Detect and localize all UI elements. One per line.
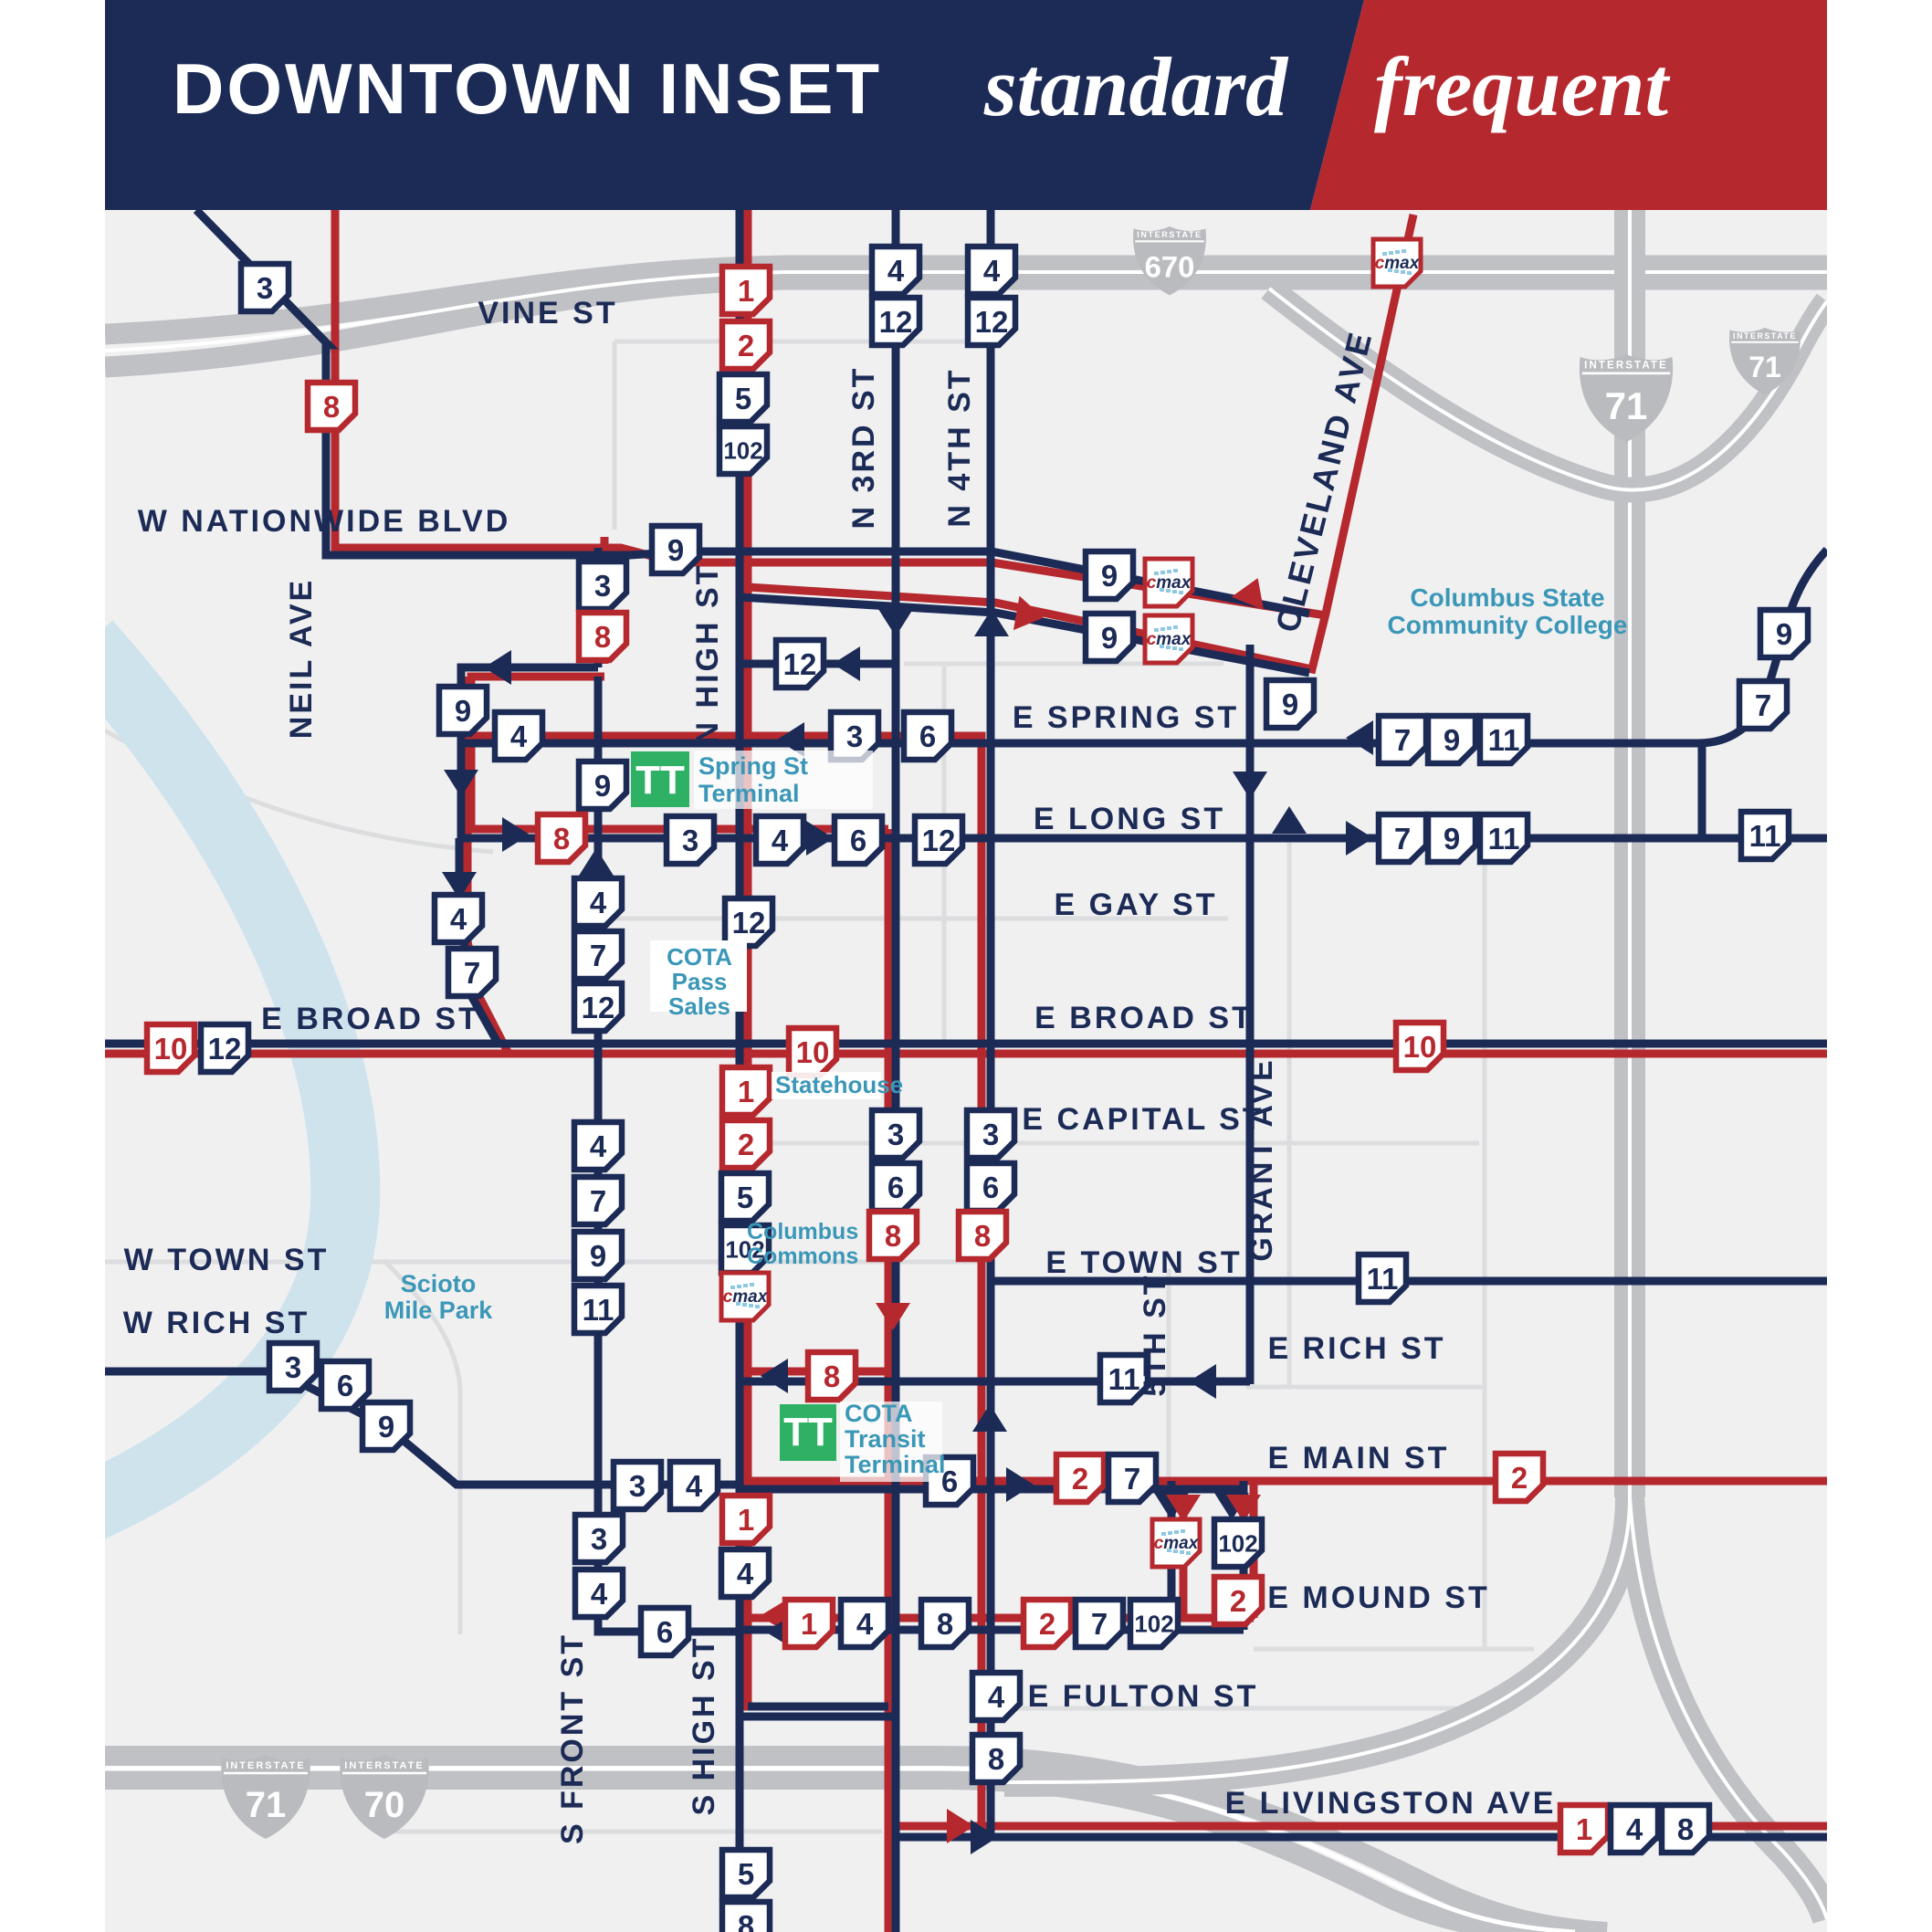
svg-text:4: 4: [1626, 1812, 1643, 1846]
svg-text:9: 9: [590, 1239, 606, 1273]
svg-text:9: 9: [378, 1410, 394, 1444]
svg-text:9: 9: [1101, 621, 1118, 655]
svg-text:Sales: Sales: [668, 992, 730, 1020]
svg-text:102: 102: [1134, 1610, 1173, 1637]
svg-text:2: 2: [1072, 1462, 1088, 1496]
svg-text:frequent: frequent: [1374, 40, 1670, 133]
svg-text:COTA: COTA: [845, 1400, 913, 1427]
svg-text:8: 8: [1677, 1812, 1694, 1846]
svg-text:Mile Park: Mile Park: [384, 1297, 494, 1324]
svg-text:Terminal: Terminal: [698, 780, 800, 807]
svg-text:11: 11: [1488, 822, 1520, 856]
svg-text:9: 9: [1444, 723, 1460, 757]
svg-text:E LIVINGSTON AVE: E LIVINGSTON AVE: [1225, 1786, 1557, 1821]
svg-text:6: 6: [919, 719, 936, 753]
svg-text:8: 8: [738, 1909, 754, 1932]
svg-text:Commons: Commons: [747, 1244, 858, 1269]
svg-text:INTERSTATE: INTERSTATE: [1137, 230, 1202, 239]
svg-text:3: 3: [982, 1118, 999, 1151]
svg-text:11: 11: [1749, 819, 1781, 853]
svg-text:E MOUND ST: E MOUND ST: [1267, 1580, 1489, 1615]
svg-text:standard: standard: [983, 40, 1289, 133]
svg-text:1: 1: [738, 1503, 754, 1537]
svg-text:6: 6: [656, 1615, 673, 1649]
svg-text:COTA: COTA: [667, 943, 732, 971]
svg-text:7: 7: [1124, 1462, 1140, 1496]
svg-text:5: 5: [738, 1857, 754, 1891]
svg-text:VINE ST: VINE ST: [478, 296, 617, 331]
svg-text:4: 4: [983, 254, 1001, 288]
svg-text:102: 102: [1218, 1529, 1257, 1557]
svg-text:4: 4: [772, 824, 789, 857]
svg-text:W TOWN ST: W TOWN ST: [124, 1243, 330, 1277]
svg-text:7: 7: [464, 956, 480, 990]
svg-text:12: 12: [208, 1032, 242, 1066]
svg-text:N 4TH ST: N 4TH ST: [942, 367, 977, 527]
svg-text:12: 12: [783, 647, 817, 681]
svg-text:10: 10: [1403, 1030, 1437, 1064]
svg-text:2: 2: [1039, 1607, 1055, 1641]
svg-text:4: 4: [988, 1680, 1005, 1714]
svg-text:4: 4: [887, 254, 905, 288]
svg-text:Community College: Community College: [1388, 611, 1628, 639]
svg-text:Columbus State: Columbus State: [1410, 583, 1604, 612]
svg-text:Pass: Pass: [672, 968, 728, 995]
svg-text:cmax: cmax: [1375, 254, 1421, 273]
svg-text:8: 8: [824, 1360, 840, 1393]
svg-text:4: 4: [450, 902, 467, 936]
svg-text:W NATIONWIDE BLVD: W NATIONWIDE BLVD: [138, 504, 511, 539]
svg-text:1: 1: [801, 1607, 817, 1641]
svg-text:12: 12: [582, 991, 615, 1024]
svg-text:9: 9: [1776, 617, 1792, 651]
svg-text:8: 8: [937, 1607, 953, 1641]
svg-text:5TH ST: 5TH ST: [1138, 1273, 1172, 1396]
svg-text:11: 11: [1108, 1362, 1140, 1396]
svg-text:11: 11: [583, 1293, 614, 1327]
svg-text:12: 12: [975, 305, 1009, 339]
svg-text:4: 4: [686, 1469, 703, 1503]
svg-text:E LONG ST: E LONG ST: [1034, 802, 1225, 836]
svg-text:11: 11: [1367, 1262, 1399, 1296]
svg-text:10: 10: [154, 1032, 188, 1066]
svg-text:6: 6: [887, 1171, 904, 1204]
svg-text:7: 7: [590, 939, 606, 972]
svg-text:INTERSTATE: INTERSTATE: [226, 1760, 305, 1771]
svg-text:71: 71: [1605, 384, 1648, 427]
svg-text:S HIGH ST: S HIGH ST: [687, 1635, 721, 1815]
svg-text:cmax: cmax: [1147, 573, 1192, 593]
svg-text:DOWNTOWN INSET: DOWNTOWN INSET: [173, 48, 882, 129]
svg-text:8: 8: [323, 390, 340, 424]
svg-text:12: 12: [922, 824, 956, 857]
svg-text:E MAIN ST: E MAIN ST: [1268, 1441, 1450, 1475]
svg-text:Terminal: Terminal: [845, 1451, 946, 1478]
svg-text:Statehouse: Statehouse: [775, 1071, 903, 1098]
svg-text:1: 1: [1576, 1812, 1592, 1846]
svg-text:GRANT AVE: GRANT AVE: [1244, 1057, 1279, 1261]
svg-text:5: 5: [735, 382, 751, 415]
svg-text:2: 2: [738, 329, 754, 362]
svg-text:Spring St: Spring St: [698, 752, 808, 780]
svg-text:3: 3: [846, 719, 863, 753]
svg-text:3: 3: [285, 1350, 301, 1384]
svg-text:E CAPITAL ST: E CAPITAL ST: [1022, 1102, 1264, 1137]
svg-text:cmax: cmax: [723, 1287, 769, 1307]
svg-text:4: 4: [590, 886, 607, 919]
svg-text:S FRONT ST: S FRONT ST: [555, 1633, 590, 1844]
svg-text:2: 2: [738, 1128, 754, 1161]
svg-text:8: 8: [885, 1219, 901, 1253]
svg-text:3: 3: [257, 271, 273, 305]
svg-text:3: 3: [591, 1522, 607, 1556]
svg-text:INTERSTATE: INTERSTATE: [1584, 361, 1668, 372]
svg-text:8: 8: [988, 1742, 1004, 1776]
svg-text:7: 7: [1394, 723, 1411, 757]
svg-text:4: 4: [590, 1129, 607, 1163]
svg-text:NEIL AVE: NEIL AVE: [284, 578, 319, 739]
svg-text:1: 1: [738, 1075, 754, 1108]
svg-text:670: 670: [1145, 250, 1195, 284]
svg-text:1: 1: [738, 274, 754, 308]
svg-text:9: 9: [1444, 822, 1460, 856]
svg-text:TT: TT: [783, 1410, 833, 1454]
svg-text:E FULTON ST: E FULTON ST: [1028, 1679, 1259, 1714]
svg-text:INTERSTATE: INTERSTATE: [344, 1760, 424, 1771]
svg-text:2: 2: [1511, 1461, 1528, 1495]
svg-text:E BROAD ST: E BROAD ST: [261, 1002, 480, 1036]
svg-text:3: 3: [887, 1118, 904, 1151]
svg-text:10: 10: [796, 1035, 830, 1069]
svg-text:E RICH ST: E RICH ST: [1267, 1331, 1445, 1366]
svg-text:4: 4: [856, 1607, 874, 1641]
svg-text:4: 4: [737, 1557, 754, 1591]
svg-text:INTERSTATE: INTERSTATE: [1733, 331, 1797, 341]
svg-text:6: 6: [337, 1369, 353, 1402]
svg-text:6: 6: [850, 824, 866, 857]
svg-text:8: 8: [553, 822, 570, 856]
svg-text:12: 12: [732, 906, 766, 940]
svg-text:E BROAD ST: E BROAD ST: [1034, 1001, 1254, 1035]
svg-text:9: 9: [594, 769, 611, 803]
svg-text:4: 4: [591, 1577, 608, 1611]
svg-text:8: 8: [974, 1219, 991, 1253]
svg-text:71: 71: [1748, 351, 1781, 383]
svg-text:7: 7: [1755, 688, 1771, 722]
svg-text:Columbus: Columbus: [747, 1219, 858, 1244]
svg-text:cmax: cmax: [1147, 630, 1192, 649]
svg-text:W RICH ST: W RICH ST: [123, 1306, 310, 1340]
svg-text:2: 2: [1230, 1584, 1246, 1618]
svg-text:7: 7: [1394, 822, 1411, 856]
svg-text:TT: TT: [635, 758, 685, 803]
svg-text:12: 12: [879, 305, 913, 339]
svg-text:3: 3: [594, 569, 611, 603]
svg-text:102: 102: [723, 436, 762, 464]
svg-text:9: 9: [1282, 688, 1298, 721]
svg-text:5: 5: [737, 1181, 753, 1214]
svg-text:N HIGH ST: N HIGH ST: [690, 563, 725, 745]
svg-text:9: 9: [455, 694, 471, 728]
svg-text:E GAY ST: E GAY ST: [1055, 887, 1218, 922]
svg-text:7: 7: [590, 1184, 606, 1218]
svg-text:7: 7: [1091, 1607, 1108, 1641]
svg-text:71: 71: [246, 1785, 287, 1825]
svg-text:8: 8: [594, 620, 611, 654]
svg-text:E SPRING ST: E SPRING ST: [1013, 700, 1239, 735]
svg-text:11: 11: [1488, 723, 1520, 757]
svg-text:6: 6: [982, 1171, 999, 1204]
svg-text:N 3RD ST: N 3RD ST: [846, 366, 881, 530]
svg-text:3: 3: [629, 1469, 646, 1503]
svg-text:cmax: cmax: [1154, 1534, 1200, 1553]
svg-text:4: 4: [510, 719, 528, 753]
svg-text:Transit: Transit: [845, 1425, 926, 1453]
svg-text:Scioto: Scioto: [401, 1270, 477, 1297]
svg-text:9: 9: [1101, 559, 1118, 593]
svg-text:3: 3: [682, 824, 698, 857]
svg-text:70: 70: [364, 1785, 405, 1825]
svg-text:9: 9: [667, 533, 684, 567]
